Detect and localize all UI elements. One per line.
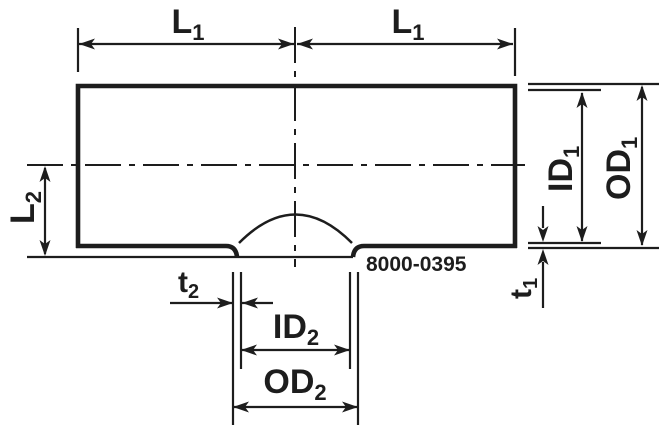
label-od2: OD2 — [263, 363, 326, 405]
label-l1-left: L1 — [171, 3, 204, 45]
dim-l2: L2 — [4, 166, 51, 256]
dim-od2: OD2 — [233, 363, 358, 413]
label-id1: ID1 — [542, 146, 584, 192]
drawing-svg: L1 L1 L2 ID1 OD1 t1 — [0, 0, 659, 425]
run-bottom-left-edge — [76, 246, 237, 257]
tee-body-outline — [27, 86, 517, 257]
dim-l1-right: L1 — [297, 3, 515, 76]
label-t1: t1 — [505, 278, 542, 299]
label-t2: t2 — [178, 266, 199, 303]
dim-t2: t2 — [170, 266, 273, 309]
centerlines — [27, 27, 525, 267]
dim-l1-left: L1 — [78, 3, 294, 72]
label-l2: L2 — [4, 191, 46, 224]
dim-id2: ID2 — [241, 308, 350, 356]
label-id2: ID2 — [273, 308, 319, 350]
run-pipe-outline — [78, 86, 515, 248]
dim-t1: t1 — [505, 206, 549, 308]
label-l1-right: L1 — [391, 3, 424, 45]
label-od1: OD1 — [600, 137, 642, 200]
tee-dimensional-drawing: L1 L1 L2 ID1 OD1 t1 — [0, 0, 659, 425]
arrowhead-down — [538, 226, 549, 242]
figure-number: 8000-0395 — [366, 253, 467, 276]
dim-id1: ID1 — [528, 90, 601, 243]
